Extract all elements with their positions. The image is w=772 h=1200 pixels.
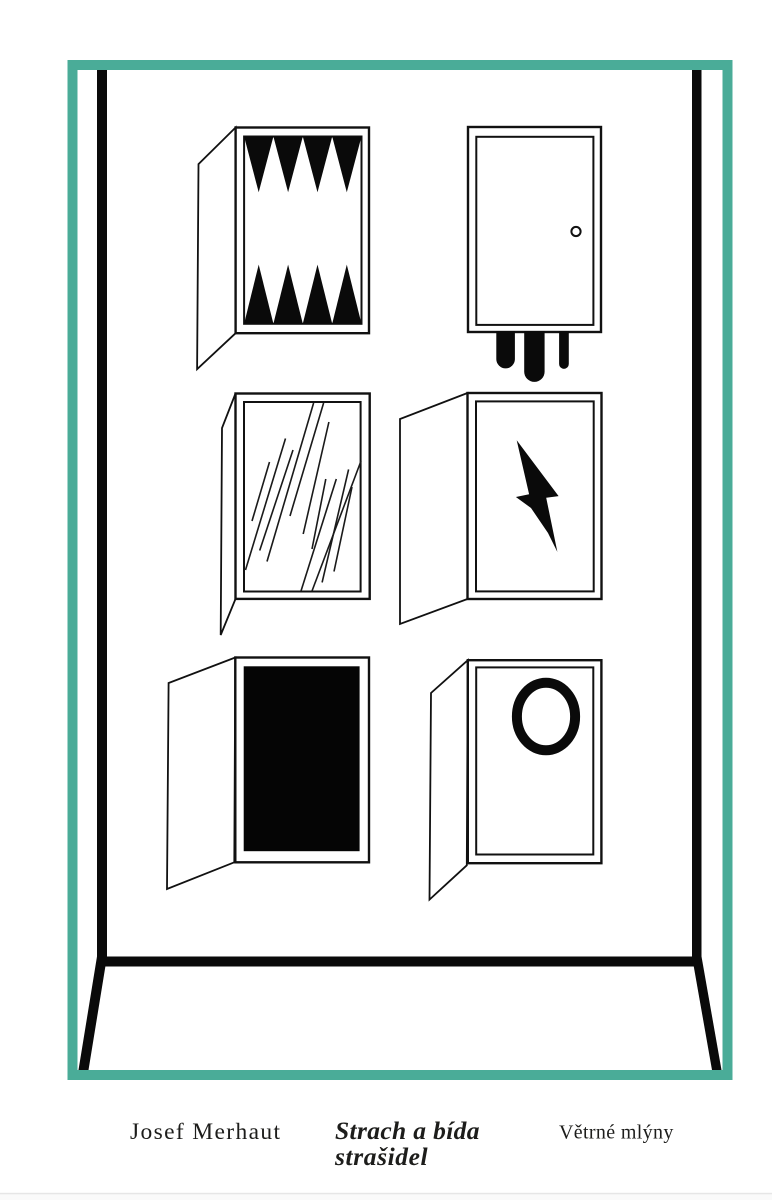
svg-text:Josef Merhaut: Josef Merhaut [130, 1119, 281, 1145]
svg-text:strašidel: strašidel [334, 1142, 429, 1171]
svg-text:Větrné mlýny: Větrné mlýny [559, 1122, 674, 1144]
svg-text:Strach a bída: Strach a bída [335, 1116, 480, 1145]
